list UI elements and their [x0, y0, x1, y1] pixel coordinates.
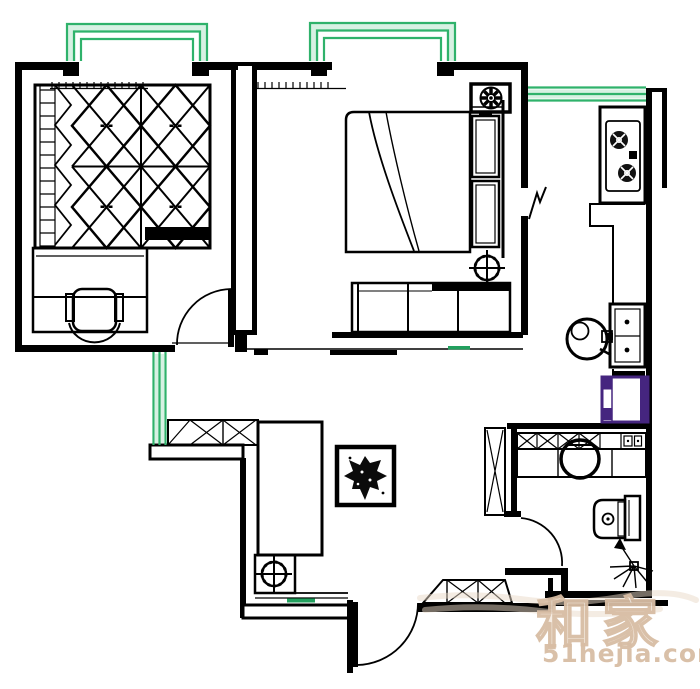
sliding-door-panel	[330, 350, 397, 355]
mattress-outline	[346, 112, 470, 252]
master-bedroom	[256, 82, 546, 332]
tray-dot	[627, 440, 629, 442]
watermark-site-text: 51hejia.com	[542, 639, 700, 668]
entry-door	[352, 602, 418, 667]
bed-zigzag-strip	[55, 85, 71, 245]
wall-entry-bottom-hollow	[243, 605, 353, 618]
plant-speck	[369, 479, 372, 482]
figure-hand	[606, 333, 613, 340]
double-bed-icon	[346, 100, 503, 258]
wall-right-outer-line	[662, 92, 667, 188]
wall-living-left	[240, 458, 246, 618]
hatched-cabinet-icon	[168, 420, 258, 445]
stove-knob	[629, 151, 637, 159]
plant-speck	[357, 483, 360, 486]
window-jamb	[63, 62, 79, 76]
wall-break-symbol	[516, 187, 546, 219]
chair-seat	[73, 289, 116, 331]
floor-green-mark	[448, 346, 470, 350]
potted-plant-icon	[337, 447, 394, 505]
burner-icon	[610, 131, 628, 149]
bay-window-left-inner	[81, 39, 193, 61]
floor-green-mark	[287, 599, 315, 603]
toilet-icon	[594, 496, 640, 540]
wall-divider-cap	[231, 330, 257, 335]
burner-icon	[618, 164, 636, 182]
side-table-icon	[258, 422, 322, 555]
door-swing-arc	[357, 603, 418, 665]
sink-drain	[625, 348, 630, 353]
window-jamb	[437, 62, 454, 76]
tatami-bed-icon	[35, 85, 210, 248]
window-jamb	[192, 62, 209, 76]
curtain-tick-row	[256, 82, 346, 89]
plant-speck	[349, 457, 352, 460]
wall-divider-topcap	[236, 62, 254, 66]
kitchen-window-lines	[528, 88, 646, 101]
door-swing-arc	[177, 289, 231, 345]
plant-speck	[361, 471, 364, 474]
stove-icon	[600, 107, 645, 203]
faucet-figure-icon	[567, 319, 613, 359]
plant-foliage	[344, 456, 387, 500]
wall-divider-right-line	[252, 62, 257, 335]
walls	[15, 62, 668, 673]
vanity-cabinet	[517, 449, 646, 477]
wardrobe-dark-band	[432, 284, 510, 291]
door-leaf	[504, 511, 521, 517]
panel-x-hatch	[487, 430, 503, 512]
kitchen	[567, 107, 648, 424]
tray-dot	[637, 440, 639, 442]
burner-symbol	[256, 556, 292, 592]
wardrobe-icon	[352, 283, 510, 332]
toilet-flush-dot	[606, 517, 609, 520]
blanket-fold	[386, 112, 419, 251]
appliance-side-band	[640, 379, 647, 421]
bathroom-door	[504, 511, 562, 566]
door-stop-block	[254, 349, 268, 355]
room-a-door	[177, 289, 234, 347]
wall-lower-left-hollow	[150, 445, 243, 459]
secondary-bedroom	[33, 82, 234, 347]
appliance-hinge	[604, 379, 612, 390]
window-jamb	[311, 62, 327, 76]
appliance-stand-icon	[255, 555, 295, 593]
washing-machine-icon	[602, 371, 648, 422]
bay-window-mid-inner	[324, 38, 441, 61]
bathroom	[504, 433, 653, 588]
cabinet-outline	[168, 420, 258, 445]
pillow-inner	[476, 185, 495, 243]
wall-top-a1	[15, 62, 65, 70]
floor-plan: 和家 51hejia.com	[0, 0, 700, 689]
figure-head	[572, 323, 589, 340]
appliance-hinge	[604, 408, 612, 420]
floor-plan-image: 和家 51hejia.com	[0, 0, 700, 689]
bay-window-glow	[71, 28, 203, 61]
door-leaf	[352, 602, 358, 667]
pillow-inner	[476, 120, 495, 173]
wall-right	[646, 88, 652, 598]
bay-window-mid-mid	[317, 31, 448, 62]
bay-window-glow	[314, 27, 451, 61]
wall-left	[15, 62, 22, 352]
living-dining-area	[168, 346, 505, 603]
bay-window-left-mid	[74, 32, 200, 62]
wall-right-cap	[646, 88, 667, 92]
blanket-fold	[369, 112, 414, 251]
fan-icon	[481, 88, 502, 109]
plant-speck	[382, 492, 385, 495]
cabinet-x-hatch	[168, 420, 256, 445]
toilet-tank	[625, 496, 640, 540]
door-leaf	[228, 289, 234, 347]
sink-drain	[625, 320, 630, 325]
ceiling-lamp-symbol	[469, 250, 505, 286]
wall-room-a-bottom	[15, 345, 175, 352]
wall-bathroom-top	[507, 423, 652, 429]
bed-dark-panel	[145, 227, 210, 240]
pillow-tick	[479, 113, 492, 117]
sliding-panel-icon	[485, 428, 505, 515]
wall-hall-bottom	[505, 568, 563, 575]
door-swing-arc	[521, 518, 562, 566]
vanity-counter-icon	[517, 433, 646, 478]
bed-ladder-strip	[40, 85, 55, 248]
appliance-top-cap	[613, 371, 645, 376]
cabinet-x-hatch	[425, 580, 505, 603]
